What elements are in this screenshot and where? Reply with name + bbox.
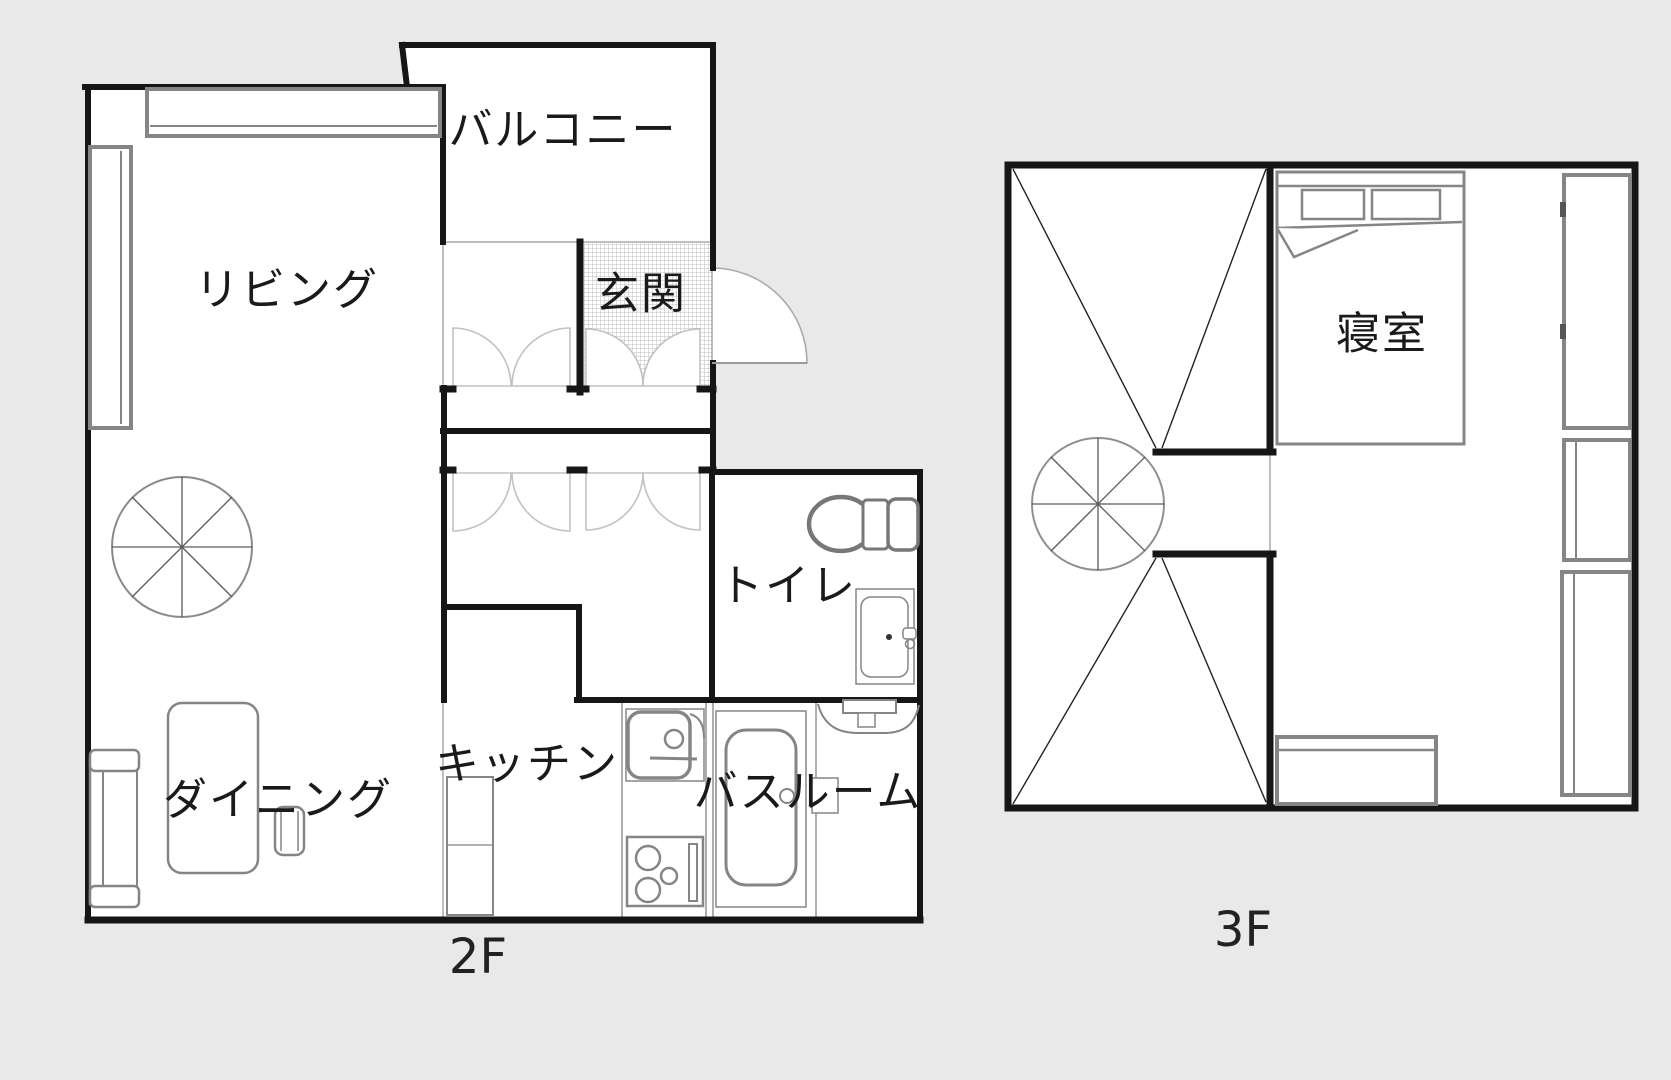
plan-3f: 寝室 3F: [1008, 165, 1635, 958]
closet-handle: [1560, 324, 1566, 339]
toilet-icon: [809, 497, 918, 551]
pillow-icon: [1302, 190, 1364, 219]
window-left-icon: [90, 147, 131, 428]
label-dining: ダイニング: [163, 775, 393, 826]
window-top-icon: [147, 89, 440, 136]
label-bedroom: 寝室: [1336, 309, 1428, 360]
dresser-icon: [1277, 737, 1436, 804]
label-genkan: 玄関: [595, 269, 687, 320]
label-balcony: バルコニー: [448, 105, 677, 156]
closet-low-icon: [1562, 572, 1630, 795]
floor-label-2f: 2F: [449, 929, 507, 985]
floorplan-canvas: リビング バルコニー 玄関 トイレ キッチン ダイニング バスルーム 2F: [0, 0, 1671, 1080]
closet-tall-icon: [1560, 175, 1630, 428]
closet-mid-icon: [1564, 440, 1630, 560]
label-kitchen: キッチン: [435, 739, 619, 790]
entrance-door-icon: [712, 268, 807, 363]
floor-label-3f: 3F: [1214, 902, 1272, 958]
label-toilet: トイレ: [719, 561, 857, 612]
sofa-icon: [90, 750, 139, 907]
plan-2f: リビング バルコニー 玄関 トイレ キッチン ダイニング バスルーム 2F: [85, 45, 922, 985]
spiral-stair-icon-3f: [1032, 438, 1164, 570]
floorplan-page: リビング バルコニー 玄関 トイレ キッチン ダイニング バスルーム 2F: [0, 0, 1671, 1080]
fridge-icon: [447, 777, 493, 915]
pillow-icon: [1372, 190, 1440, 219]
label-living: リビング: [195, 265, 379, 316]
closet-handle: [1560, 202, 1566, 217]
stove-icon: [627, 837, 703, 906]
spiral-stair-icon: [112, 477, 252, 617]
label-bathroom: バスルーム: [694, 767, 923, 818]
